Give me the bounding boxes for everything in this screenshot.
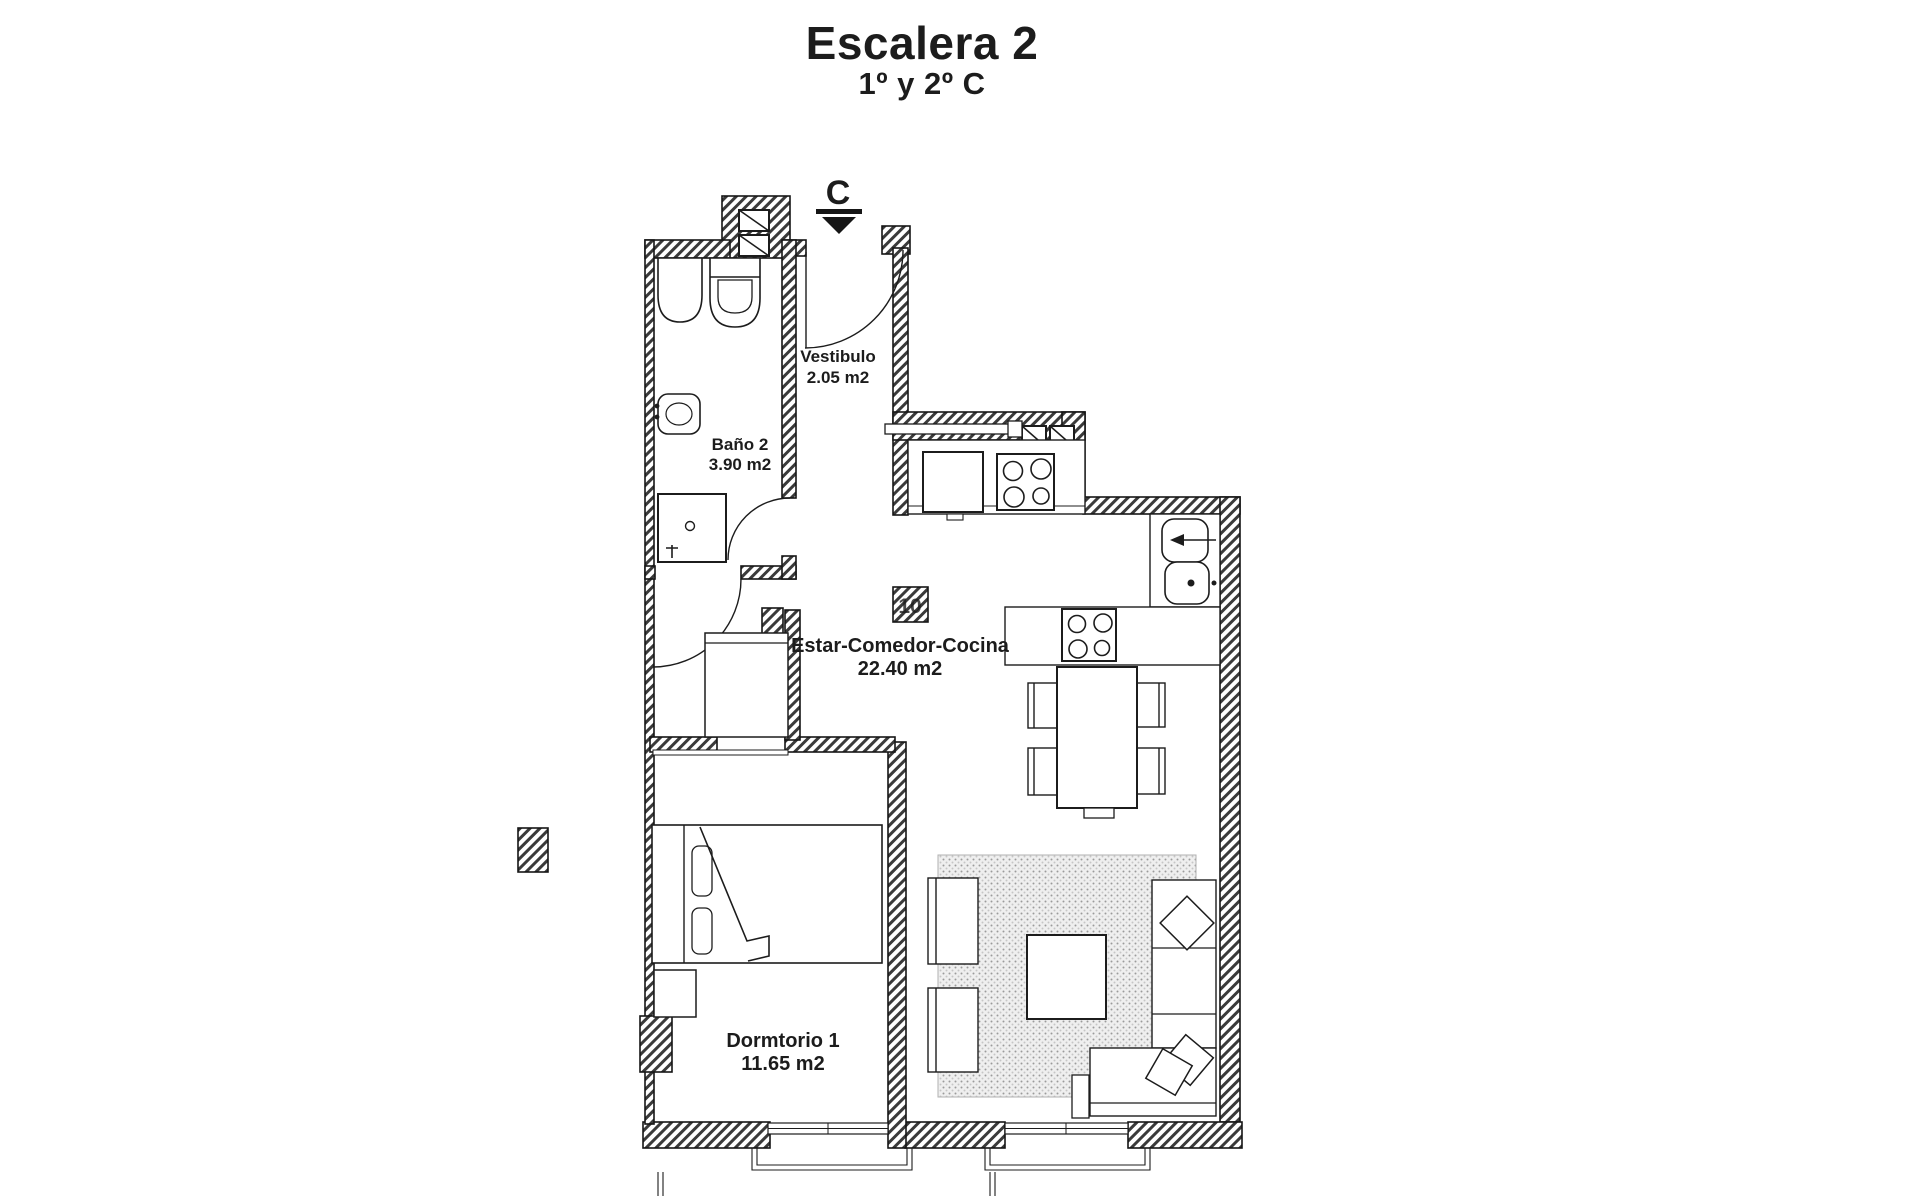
sink-tap-dot (1212, 581, 1217, 586)
bed (652, 825, 882, 963)
living-bottom-wall (905, 1122, 1005, 1148)
dining-table (1057, 667, 1137, 808)
floor-plan-page: Escalera 2 1º y 2º C (0, 0, 1920, 1200)
living-balcony-outline (985, 1148, 1150, 1170)
living-kitchen-label: Estar-Comedor-Cocina (791, 635, 1010, 657)
bathroom-right-wall-upper (782, 240, 796, 498)
chair (1028, 683, 1058, 728)
bedroom-left-pier (640, 1016, 672, 1072)
side-table (1072, 1075, 1089, 1118)
pillow (692, 846, 712, 896)
pass-through-end-cap (1008, 421, 1022, 437)
entrance-arrow-icon (822, 217, 856, 234)
bathroom-area-label: 3.90 m2 (709, 455, 771, 474)
bedroom-area-label: 11.65 m2 (741, 1053, 824, 1075)
bathroom-fixtures (655, 258, 760, 562)
left-exterior-wall (645, 240, 654, 1124)
bedroom-balcony-outline (752, 1148, 912, 1170)
washbasin-tap-dot (655, 404, 660, 409)
vestibule-label: Vestibulo (800, 347, 876, 366)
top-right-wall (1083, 497, 1240, 514)
floor-plan-drawing: C Baño 2 3.90 m2 Vestibulo 2.05 m2 Estar… (0, 0, 1920, 1200)
bidet-icon (658, 258, 702, 322)
shower-tray-icon (658, 494, 726, 562)
vestibule-area-label: 2.05 m2 (807, 368, 869, 387)
kitchen (885, 421, 1220, 665)
balcony-posts (658, 1172, 995, 1196)
nightstand (654, 970, 696, 1017)
sink-bowl-icon (1165, 562, 1209, 604)
dining-area (1028, 667, 1165, 818)
washbasin-tap-dot (655, 415, 660, 420)
pass-through-bar (885, 424, 1018, 434)
chair (1136, 748, 1165, 794)
hall-pier (762, 608, 783, 634)
chair (1136, 683, 1165, 727)
entrance-arrow-bar (816, 209, 862, 214)
entrance-marker: C (816, 174, 862, 234)
counter-tab (947, 514, 963, 520)
bedroom-door-threshold (653, 750, 788, 755)
sink-drain-dot (1188, 580, 1195, 587)
bedroom-bottom-wall (643, 1122, 770, 1148)
living-kitchen-area-label: 22.40 m2 (858, 658, 943, 680)
fridge-icon (923, 452, 983, 512)
pillow (692, 908, 712, 954)
right-exterior-wall (1220, 497, 1240, 1122)
entrance-letter: C (826, 174, 851, 212)
washbasin-icon (658, 394, 700, 434)
bedroom-top-wall-right (785, 737, 895, 752)
bathroom-top-wall (645, 240, 730, 258)
pillar-watermark: 10 (898, 595, 921, 618)
entrance-door-arc (805, 250, 903, 348)
exterior-pier (518, 828, 548, 872)
coffee-table (1027, 935, 1106, 1019)
bathroom-right-wall-lower (782, 556, 796, 579)
living-area (928, 855, 1216, 1118)
bedroom (652, 633, 882, 1017)
chair (1028, 748, 1058, 795)
bathroom-bottom-wall-left (645, 566, 655, 579)
wardrobe (705, 633, 788, 737)
bedroom-living-divider-wall (888, 742, 906, 1148)
bedroom-label: Dormtorio 1 (726, 1030, 839, 1052)
table-pedestal (1084, 808, 1114, 818)
bathroom-label: Baño 2 (712, 435, 769, 454)
bottom-right-wall (1128, 1122, 1242, 1148)
toilet-bowl (718, 280, 752, 313)
bathroom-inner-door-arc (728, 498, 790, 560)
